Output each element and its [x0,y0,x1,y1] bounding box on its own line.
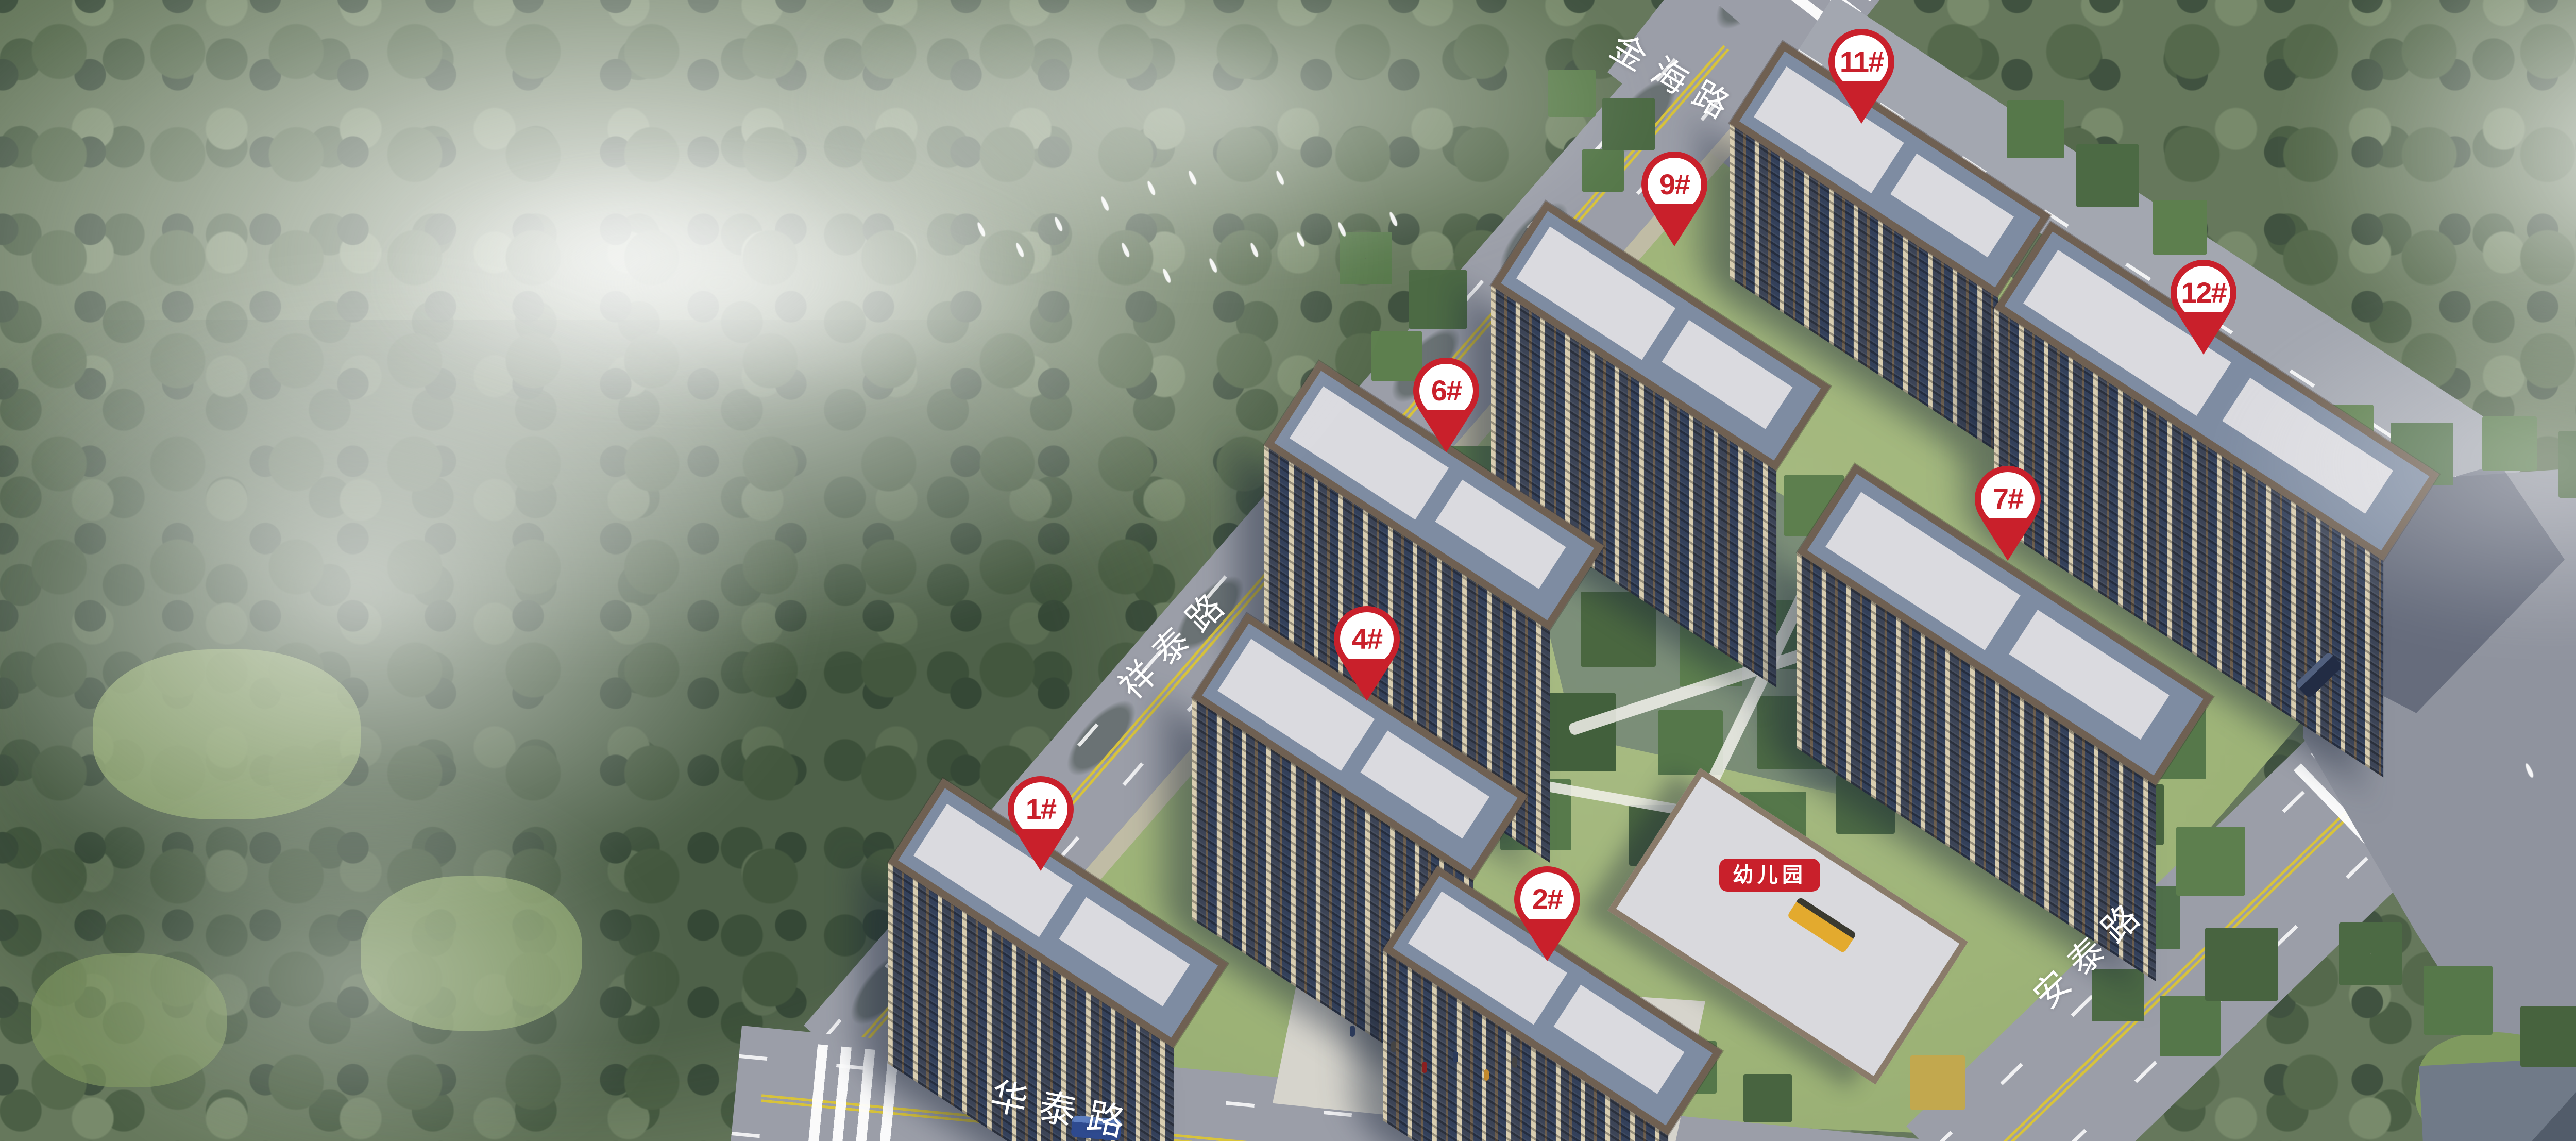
lane-markings [731,1132,2044,1141]
northwest-trees [1365,258,1366,259]
lawn-patch [31,953,227,1087]
building-pin-1[interactable]: 1# [1008,776,1074,871]
building-pin-9[interactable]: 9# [1641,152,1707,246]
building-pin-7[interactable]: 7# [1975,466,2041,561]
kindergarten-label[interactable]: 幼儿园 [1719,859,1820,892]
lawn-patch [361,876,582,1031]
building-pin-12[interactable]: 12# [2171,260,2236,355]
building-pin-2[interactable]: 2# [1514,866,1580,961]
plaza-edge-trees [2370,953,2371,954]
corner-building [2419,1053,2576,1141]
building-pin-11[interactable]: 11# [1828,29,1894,124]
north-trees [1571,93,1572,94]
building-pin-6[interactable]: 6# [1413,358,1479,452]
aerial-rendering: 金海路 祥泰路 安泰路 华泰路 幼儿园 1# 2# 4# 6# 7# 9# 11… [0,0,2576,1141]
building-pin-4[interactable]: 4# [1334,606,1400,701]
lawn-patch [93,649,361,819]
